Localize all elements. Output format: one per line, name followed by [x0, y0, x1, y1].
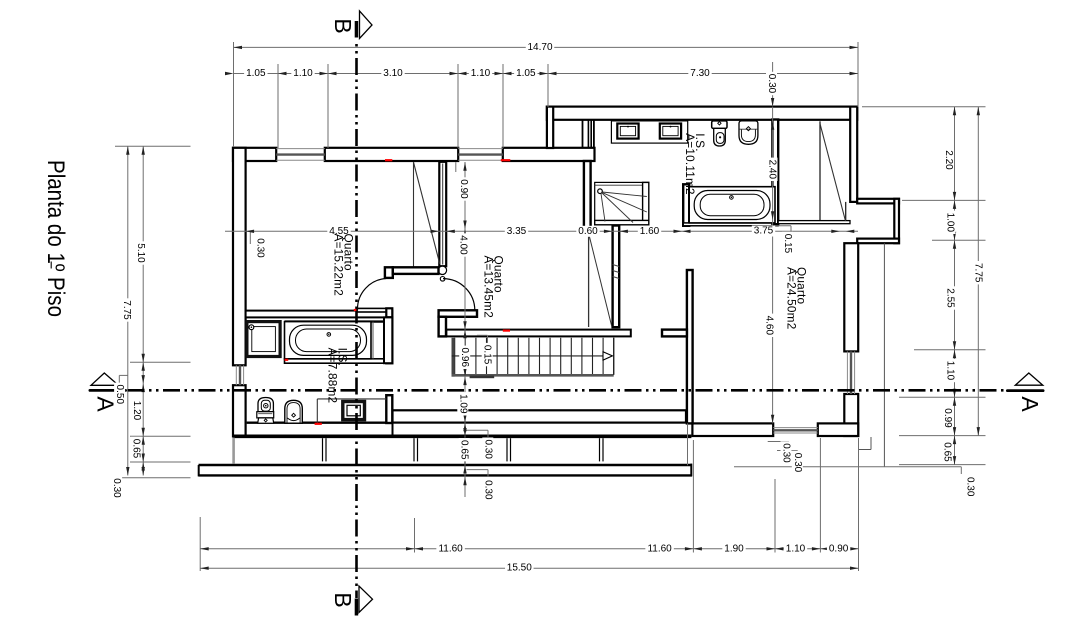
svg-text:1.60: 1.60 — [640, 226, 660, 237]
svg-text:1.90: 1.90 — [724, 543, 744, 554]
svg-text:1.05: 1.05 — [516, 68, 536, 79]
svg-text:0.90: 0.90 — [829, 543, 849, 554]
svg-text:0.65: 0.65 — [459, 440, 470, 460]
svg-text:4.60: 4.60 — [764, 316, 775, 336]
svg-text:11.60: 11.60 — [438, 543, 463, 554]
svg-text:7.75: 7.75 — [121, 300, 132, 320]
svg-text:2.55: 2.55 — [945, 288, 956, 308]
svg-text:0.96: 0.96 — [459, 348, 470, 368]
svg-text:1.10: 1.10 — [945, 361, 956, 381]
svg-text:0.30: 0.30 — [964, 477, 975, 497]
svg-text:1.09: 1.09 — [457, 394, 468, 414]
svg-text:B: B — [330, 18, 356, 33]
svg-text:0.30: 0.30 — [781, 443, 792, 463]
svg-text:3.75: 3.75 — [754, 226, 774, 237]
svg-text:Planta do 1º Piso: Planta do 1º Piso — [42, 160, 69, 317]
svg-text:1.00: 1.00 — [945, 213, 956, 233]
svg-text:0.30: 0.30 — [792, 453, 803, 473]
svg-text:0.65: 0.65 — [942, 442, 953, 462]
svg-text:14.70: 14.70 — [527, 42, 552, 53]
svg-text:1.05: 1.05 — [246, 68, 266, 79]
svg-text:0.15: 0.15 — [482, 345, 493, 365]
svg-text:3.35: 3.35 — [507, 226, 527, 237]
svg-text:1.10: 1.10 — [471, 68, 491, 79]
svg-text:1.10: 1.10 — [786, 543, 806, 554]
svg-text:0.60: 0.60 — [578, 226, 598, 237]
svg-text:11.60: 11.60 — [647, 543, 672, 554]
svg-text:0.50: 0.50 — [114, 385, 125, 405]
svg-text:A: A — [1017, 396, 1043, 412]
svg-text:0.90: 0.90 — [458, 179, 469, 199]
svg-text:2.20: 2.20 — [943, 150, 954, 170]
svg-text:7.75: 7.75 — [972, 263, 983, 283]
svg-text:0.99: 0.99 — [942, 408, 953, 428]
svg-text:0.30: 0.30 — [254, 238, 265, 258]
svg-text:5.10: 5.10 — [135, 243, 146, 263]
svg-text:15.50: 15.50 — [507, 563, 532, 574]
svg-text:0.30: 0.30 — [111, 478, 122, 498]
svg-text:1.20: 1.20 — [131, 401, 142, 421]
svg-text:7.30: 7.30 — [690, 68, 710, 79]
svg-text:1.10: 1.10 — [293, 68, 313, 79]
svg-text:0.30: 0.30 — [482, 439, 493, 459]
svg-text:2.40: 2.40 — [767, 160, 778, 180]
svg-text:4.00: 4.00 — [458, 235, 469, 255]
svg-text:0.15: 0.15 — [782, 234, 793, 254]
svg-text:3.10: 3.10 — [383, 68, 403, 79]
svg-text:0.65: 0.65 — [131, 439, 142, 459]
svg-text:0.30: 0.30 — [766, 74, 777, 94]
svg-text:0.30: 0.30 — [482, 480, 493, 500]
svg-text:B: B — [330, 592, 356, 607]
